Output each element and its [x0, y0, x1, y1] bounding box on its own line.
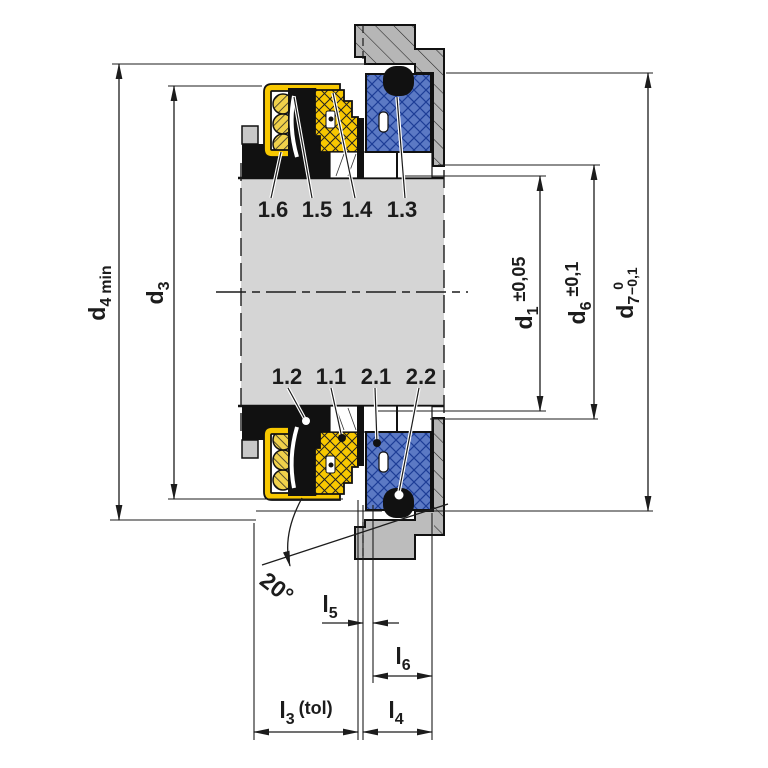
sealing-interface — [357, 118, 364, 179]
leader-dot-2-1 — [373, 439, 381, 447]
label-part-1-2: 1.2 — [272, 364, 303, 389]
label-d6: d6±0,1 — [562, 262, 595, 325]
label-d4min: d4min — [84, 265, 115, 320]
seat-o-ring — [383, 66, 414, 96]
label-angle-20: 20° — [255, 567, 298, 609]
label-part-1-4: 1.4 — [342, 197, 373, 222]
seat-slot — [379, 112, 388, 132]
leader-dot-1-2 — [302, 417, 310, 425]
label-d1: d1±0,05 — [509, 257, 542, 330]
mechanical-seal-drawing: 1.6 1.5 1.4 1.3 1.2 1.1 2.1 2.2 d4min d3… — [0, 0, 768, 768]
label-l6: l6 — [395, 643, 410, 674]
label-l5: l5 — [322, 591, 337, 622]
label-d7: d70−0,1 — [610, 267, 643, 319]
label-part-2-1: 2.1 — [361, 364, 392, 389]
label-part-2-2: 2.2 — [406, 364, 437, 389]
label-part-1-1: 1.1 — [316, 364, 347, 389]
drive-lug-dot — [329, 117, 334, 122]
label-part-1-5: 1.5 — [302, 197, 333, 222]
label-part-1-3: 1.3 — [387, 197, 418, 222]
label-l3-tol: l3(tol) — [279, 697, 332, 728]
housing-bottom-leg-hatch — [434, 419, 443, 534]
collar-block — [242, 126, 258, 144]
label-part-1-6: 1.6 — [258, 197, 289, 222]
leader-dot-2-2 — [395, 491, 404, 500]
label-l4: l4 — [388, 697, 403, 728]
label-d3: d3 — [142, 281, 173, 304]
seal-face — [315, 90, 358, 152]
leader-dot-1-1 — [338, 434, 346, 442]
